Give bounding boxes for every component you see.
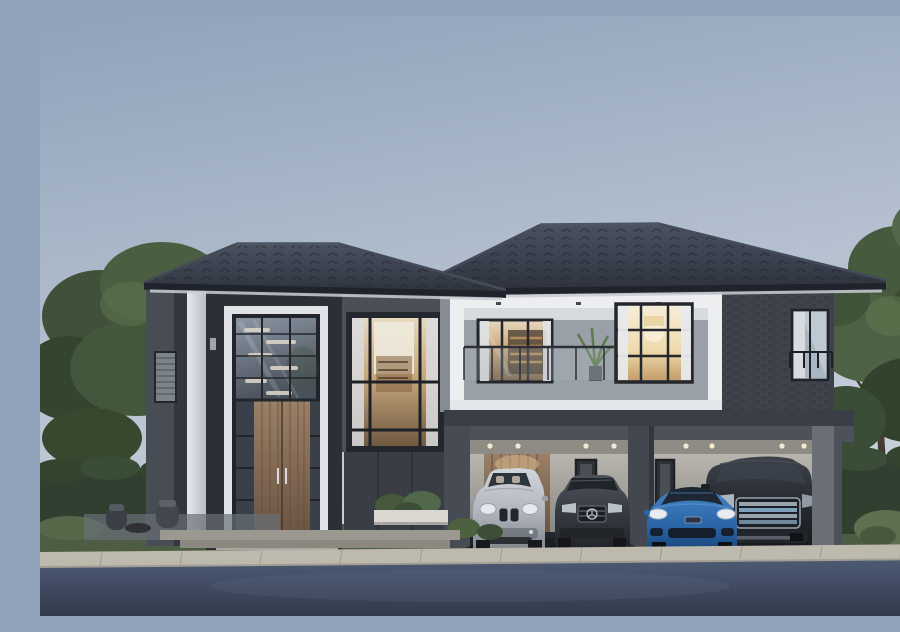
steps (160, 530, 460, 548)
corner-pillar (187, 284, 208, 546)
curtain (681, 306, 691, 380)
balcony (440, 288, 724, 412)
balcony-window-bright (616, 304, 692, 382)
corner-window-right (790, 310, 832, 380)
curtain (618, 306, 628, 380)
curtain (794, 312, 805, 378)
entrance-tower (202, 278, 352, 550)
architectural-render (40, 16, 900, 616)
wall-sconce (210, 338, 216, 350)
entrance-door-level (236, 400, 320, 532)
planter-box (374, 491, 448, 525)
downlight (576, 302, 581, 305)
house (144, 224, 886, 563)
balcony-railing (464, 347, 614, 380)
downlight (496, 302, 501, 305)
entrance-glazing (236, 318, 318, 400)
shrub (477, 524, 503, 540)
